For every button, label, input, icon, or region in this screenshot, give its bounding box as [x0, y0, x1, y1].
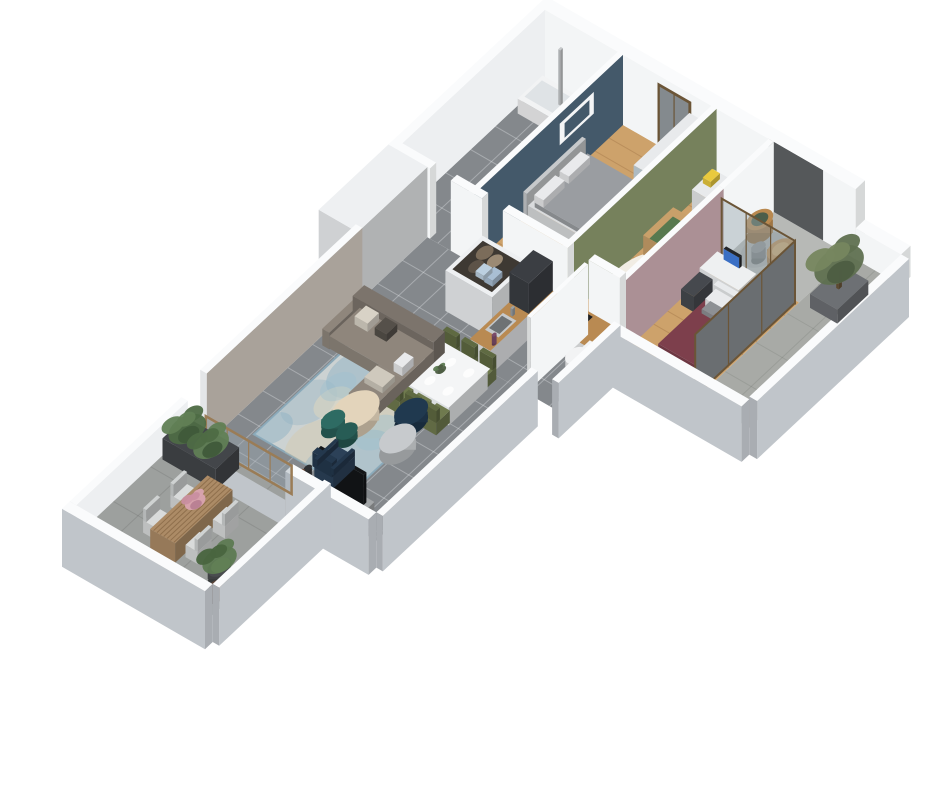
shower-column	[558, 47, 563, 106]
floor-plan-canvas	[0, 0, 941, 800]
floor-plan-render	[0, 0, 941, 800]
